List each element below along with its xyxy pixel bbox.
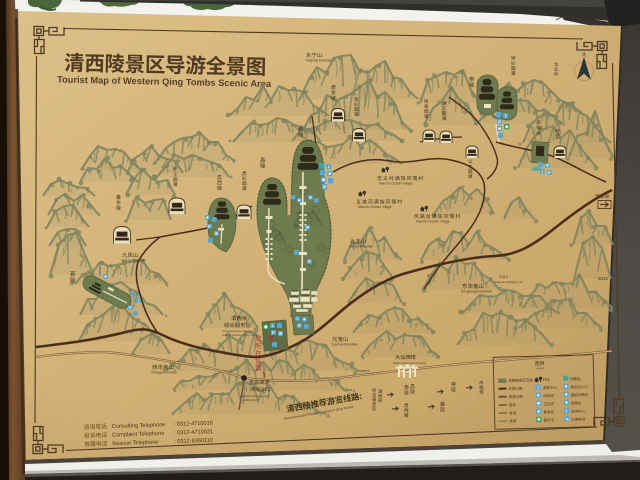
svg-text:S212: S212 <box>598 276 608 281</box>
svg-text:Jiulong Mountain: Jiulong Mountain <box>349 245 373 249</box>
svg-text:i: i <box>537 385 538 390</box>
svg-text:Donghuagai Mountain: Donghuagai Mountain <box>461 290 492 294</box>
svg-text:P: P <box>548 171 551 175</box>
svg-text:Manchu Custom Village: Manchu Custom Village <box>358 205 392 209</box>
svg-text:Legend: Legend <box>536 366 545 370</box>
svg-text:Jiufeng Mountain: Jiufeng Mountain <box>121 259 146 263</box>
svg-text:P: P <box>129 306 132 310</box>
svg-text:Xihuagai Mountain: Xihuagai Mountain <box>151 371 178 375</box>
svg-text:Area of Western Qing Tombs: Area of Western Qing Tombs <box>222 333 260 337</box>
svg-text:P: P <box>537 393 540 398</box>
svg-text:i: i <box>328 164 329 169</box>
svg-text:(Xiling Exit): (Xiling Exit) <box>243 398 258 402</box>
svg-text:P: P <box>323 184 326 189</box>
svg-text:Yongning Mountain: Yongning Mountain <box>305 59 332 63</box>
svg-text:i: i <box>566 408 567 413</box>
svg-text:G112: G112 <box>499 275 508 279</box>
svg-text:Yuanbao Mountain: Yuanbao Mountain <box>331 343 358 347</box>
svg-text:P: P <box>498 119 501 124</box>
svg-text:P: P <box>208 225 211 229</box>
svg-text:P: P <box>272 330 275 335</box>
svg-text:Manchu Custom Village: Manchu Custom Village <box>379 182 413 186</box>
svg-text:Paifang Memorial Archway: Paifang Memorial Archway <box>393 361 427 365</box>
svg-text:i: i <box>542 170 543 174</box>
svg-text:P: P <box>298 324 301 328</box>
svg-text:National Highway 112: National Highway 112 <box>494 280 523 284</box>
svg-text:i: i <box>138 299 139 303</box>
svg-text:i: i <box>297 317 298 321</box>
svg-text:i: i <box>505 113 506 118</box>
svg-text:i: i <box>272 323 273 328</box>
svg-text:Manchu Custom Village: Manchu Custom Village <box>416 220 450 224</box>
